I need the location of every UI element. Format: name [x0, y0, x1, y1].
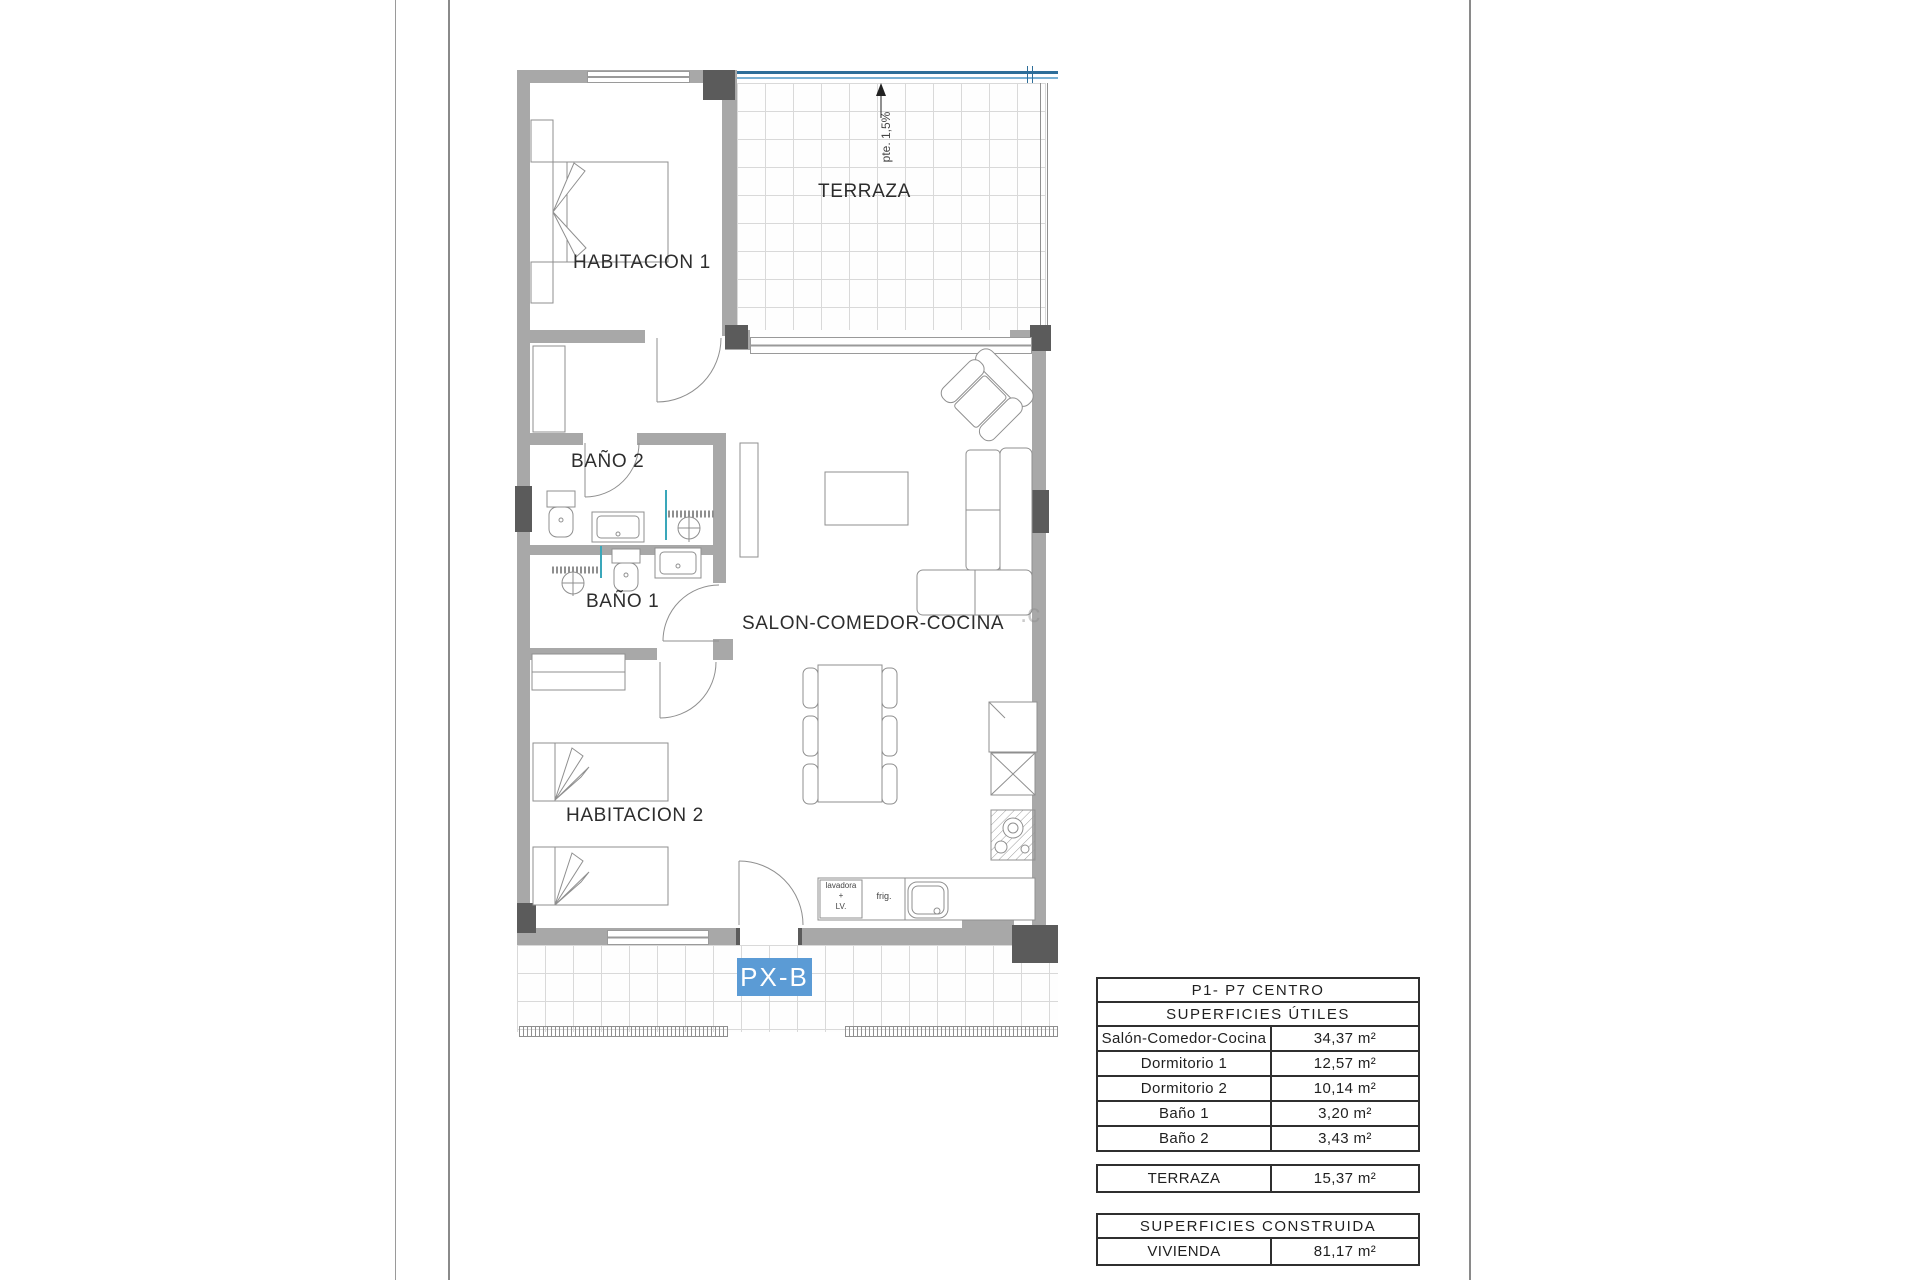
- row-label: Salón-Comedor-Cocina: [1098, 1027, 1272, 1050]
- room-label-bano1: BAÑO 1: [586, 591, 659, 613]
- tv-bench: [740, 443, 758, 557]
- fridge-note: frig.: [862, 891, 906, 907]
- fridge: [991, 753, 1035, 795]
- table-row: TERRAZA 15,37 m²: [1098, 1166, 1418, 1191]
- table-row: VIVIENDA 81,17 m²: [1098, 1239, 1418, 1264]
- room-label-habitacion1: HABITACION 1: [573, 252, 711, 274]
- toilet-bano1: [612, 549, 640, 591]
- kitchen-sink: [908, 882, 948, 918]
- slope-note: pte. 1,5%: [879, 97, 893, 177]
- hallway-closet: [533, 346, 565, 432]
- table-title: P1- P7 CENTRO: [1098, 979, 1418, 1003]
- washer-note: lavadora + LV.: [818, 881, 864, 919]
- surface-table-terraza: TERRAZA 15,37 m²: [1096, 1164, 1420, 1193]
- room-label-bano2: BAÑO 2: [571, 451, 644, 473]
- dining-set: [803, 665, 897, 804]
- toilet-bano2: [547, 491, 575, 537]
- bed-single-2: [533, 847, 668, 905]
- row-label: Dormitorio 1: [1098, 1052, 1272, 1075]
- row-value: 10,14 m²: [1272, 1077, 1418, 1100]
- table-row: Dormitorio 1 12,57 m²: [1098, 1052, 1418, 1077]
- bed-double: [531, 120, 668, 303]
- sofa-l-shape: [917, 448, 1032, 615]
- watermark: .c: [1020, 598, 1040, 629]
- door-bano1: [663, 585, 719, 641]
- row-label: Baño 2: [1098, 1127, 1272, 1150]
- door-bedroom1: [657, 338, 721, 402]
- stove: [991, 810, 1035, 860]
- row-label: Dormitorio 2: [1098, 1077, 1272, 1100]
- room-label-salon: SALON-COMEDOR-COCINA: [742, 613, 1004, 635]
- table-subtitle: SUPERFICIES ÚTILES: [1098, 1003, 1418, 1027]
- row-label: Baño 1: [1098, 1102, 1272, 1125]
- row-label: VIVIENDA: [1098, 1239, 1272, 1264]
- row-value: 81,17 m²: [1272, 1239, 1418, 1264]
- table-row: Dormitorio 2 10,14 m²: [1098, 1077, 1418, 1102]
- table-row: Baño 2 3,43 m²: [1098, 1127, 1418, 1150]
- room-label-terraza: TERRAZA: [818, 181, 911, 203]
- bed-single-1: [533, 743, 668, 801]
- sink-bano2: [592, 512, 644, 542]
- plan-sheet: HABITACION 1 TERRAZA BAÑO 2 BAÑO 1 SALON…: [0, 0, 1920, 1280]
- row-value: 34,37 m²: [1272, 1027, 1418, 1050]
- door-entrance: [739, 861, 803, 925]
- coffee-table: [825, 472, 908, 525]
- armchair: [938, 345, 1037, 444]
- surface-table-useful: P1- P7 CENTRO SUPERFICIES ÚTILES Salón-C…: [1096, 977, 1420, 1152]
- floor-plan: HABITACION 1 TERRAZA BAÑO 2 BAÑO 1 SALON…: [0, 0, 1920, 1280]
- wardrobe: [532, 654, 625, 690]
- unit-tag: PX-B: [737, 958, 812, 996]
- surface-table-built: SUPERFICIES CONSTRUIDA VIVIENDA 81,17 m²: [1096, 1213, 1420, 1266]
- row-value: 3,43 m²: [1272, 1127, 1418, 1150]
- furniture-overlay: [500, 45, 1080, 1065]
- kitchen-cabinet: [989, 702, 1037, 752]
- row-value: 15,37 m²: [1272, 1166, 1418, 1191]
- table-row: Baño 1 3,20 m²: [1098, 1102, 1418, 1127]
- row-value: 12,57 m²: [1272, 1052, 1418, 1075]
- row-label: TERRAZA: [1098, 1166, 1272, 1191]
- door-bedroom2: [660, 662, 716, 718]
- row-value: 3,20 m²: [1272, 1102, 1418, 1125]
- table-row: Salón-Comedor-Cocina 34,37 m²: [1098, 1027, 1418, 1052]
- shower-bano2: [668, 514, 716, 542]
- table-title: SUPERFICIES CONSTRUIDA: [1098, 1215, 1418, 1239]
- sink-bano1: [655, 548, 701, 578]
- room-label-habitacion2: HABITACION 2: [566, 805, 704, 827]
